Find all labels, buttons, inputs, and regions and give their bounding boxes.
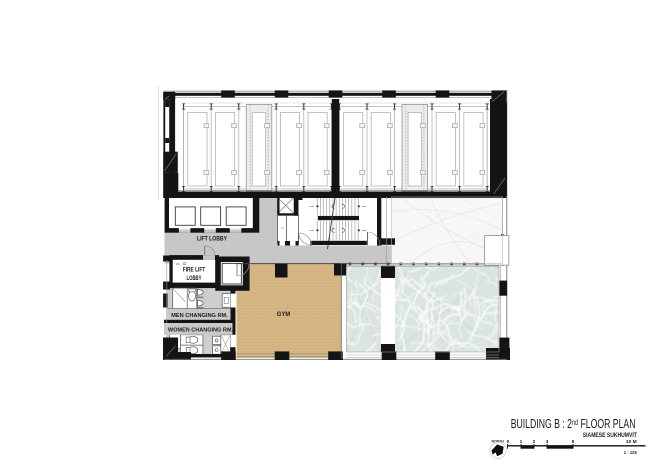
svg-text:LOBBY: LOBBY — [187, 276, 202, 282]
svg-text:LIFT LOBBY: LIFT LOBBY — [197, 236, 227, 242]
svg-text:FIRE LIFT: FIRE LIFT — [183, 268, 206, 274]
svg-text:MEN CHANGING RM.: MEN CHANGING RM. — [171, 313, 228, 319]
svg-text:0: 0 — [507, 439, 510, 445]
svg-text:2: 2 — [533, 439, 536, 445]
svg-text:1 : 125: 1 : 125 — [624, 450, 637, 455]
svg-text:GYM: GYM — [277, 312, 291, 318]
svg-text:10 M: 10 M — [626, 439, 637, 445]
svg-text:FK: FK — [176, 262, 180, 266]
svg-text:5: 5 — [572, 439, 575, 445]
svg-text:3: 3 — [546, 439, 549, 445]
svg-text:SIAMESE SUKHUMVIT: SIAMESE SUKHUMVIT — [583, 432, 637, 439]
svg-text:WOMEN CHANGING RM.: WOMEN CHANGING RM. — [168, 327, 233, 333]
svg-text:1: 1 — [520, 439, 523, 445]
